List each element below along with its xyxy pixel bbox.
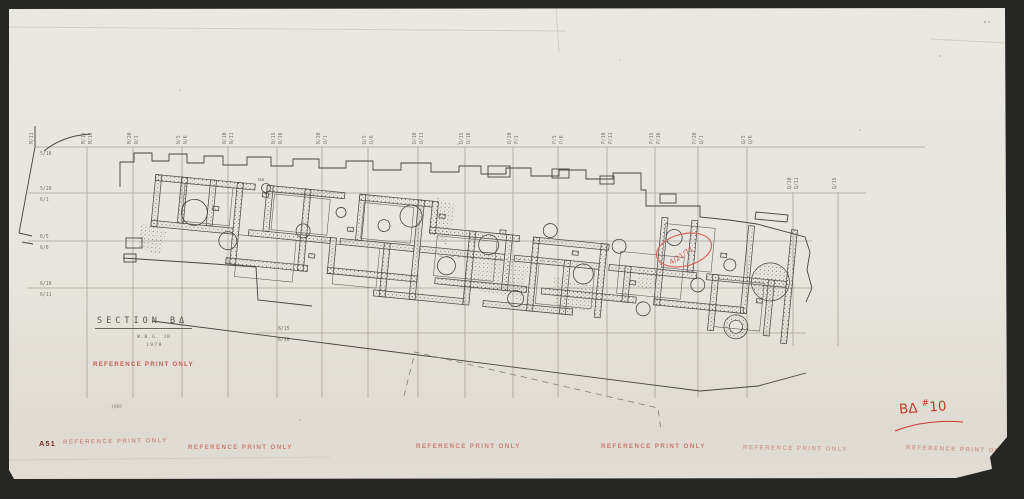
grid-label: N/6 [183,135,189,144]
grid-label: 5/16 [40,151,52,157]
scanned-drawing: { "scan": {"background": "#262625", "pap… [0,0,1024,499]
author-initials: W.B.G. JR [137,335,171,340]
grid-label: Q/5 [741,135,747,144]
grid-label: M/20 [127,132,133,144]
grid-label: N/5 [176,135,182,144]
grid-label: 6/15 [278,326,290,332]
grid-label: O/1 [323,135,329,144]
grid-label: Q/15 [832,177,838,189]
grid-label: P/10 [601,132,607,144]
grid-label: P/5 [552,135,558,144]
sheet-number: A51 [39,439,56,448]
catalog-number: BΔ #10 [898,397,947,417]
grid-label: O/11 [419,132,425,144]
grid-label: O/6 [369,135,375,144]
grid-label: N/1 [134,135,140,144]
section-title: SECTION BΔ [95,316,192,329]
grid-label: O/5 [362,135,368,144]
grid-label: O/15 [459,132,465,144]
grid-label: Q/10 [787,177,793,189]
grid-label: N/10 [222,132,228,144]
grid-label: 6/5 [40,234,49,240]
grid-label: 6/6 [40,245,49,251]
grid-label: N/15 [271,132,277,144]
benchmark-label: TAB [257,177,265,182]
reference-stamp-titleblock: REFERENCE PRINT ONLY [93,361,194,368]
grid-label: P/1 [514,135,520,144]
grid-label: Q/1 [699,135,705,144]
catalog-underline [895,421,963,431]
grid-label: 5/20 [40,186,52,192]
grid-label: N/11 [229,132,235,144]
grid-label: P/20 [692,132,698,144]
grid-label: P/11 [608,132,614,144]
grid-label: Q/11 [794,177,800,189]
reference-print-stamp: REFERENCE PRINT ONLY [601,443,706,450]
dashed-trench-outline [404,352,661,431]
grid-label: N/16 [278,132,284,144]
dust-specks [179,21,990,421]
grid-label: P/15 [649,132,655,144]
grid-label: 6/1 [40,197,49,203]
grid-label: N/20 [316,132,322,144]
grid-label: 6/10 [40,281,52,287]
reference-print-stamp: REFERENCE PRINT ONLY [188,444,293,451]
grid-label: P/16 [656,132,662,144]
grid-label: 6/11 [40,292,52,298]
grid-label: O/20 [507,132,513,144]
drawing-artwork: M/15M/16M/20N/1N/5N/6N/10N/11N/15N/16N/2… [0,0,1024,499]
grid-label: O/10 [412,132,418,144]
grid-label: M/11 [29,132,35,144]
paper-sheet: M/15M/16M/20N/1N/5N/6N/10N/11N/15N/16N/2… [0,0,1024,499]
grid-label: Q/6 [748,135,754,144]
drawing-year: 1970 [146,343,163,348]
grid-label: P/6 [559,135,565,144]
grid-label: O/16 [466,132,472,144]
reference-print-stamp: REFERENCE PRINT ONLY [416,443,521,450]
pencil-note: 1966 [111,404,122,411]
